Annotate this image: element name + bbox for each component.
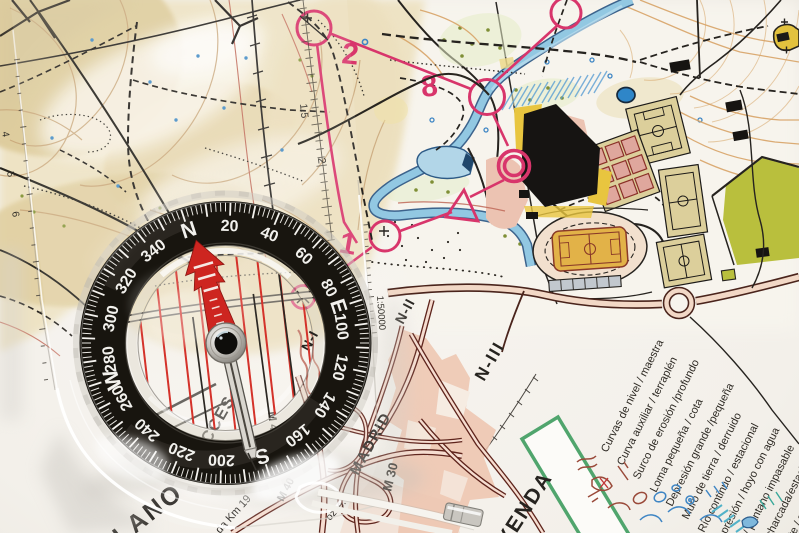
svg-text:2: 2 [315, 157, 328, 164]
svg-text:1.5: 1.5 [297, 103, 310, 119]
svg-text:200: 200 [208, 450, 235, 468]
svg-text:20: 20 [220, 218, 238, 236]
